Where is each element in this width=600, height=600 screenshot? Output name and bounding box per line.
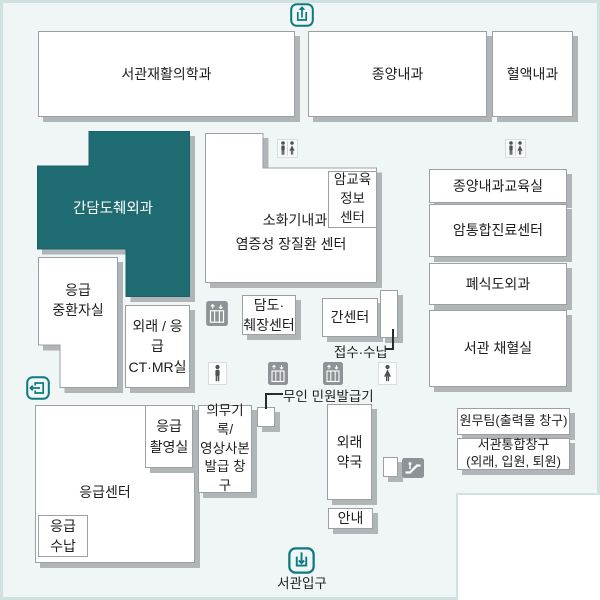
room-label-digestive-2: 염증성 장질환 센터 [208, 235, 374, 255]
room-label: 췌장센터 [243, 315, 295, 335]
room-label: (외래, 입원, 퇴원) [466, 454, 561, 471]
reception-connector-line [386, 329, 394, 350]
restroom-unisex-icon [505, 139, 526, 158]
room-blood-lab: 서관 채혈실 [429, 310, 567, 387]
room-label: 의무기록/ [199, 402, 251, 440]
room-label-hbp: 간담도췌외과 [40, 199, 186, 219]
room-label: 서관통합창구 [478, 437, 550, 454]
room-oncology: 종양내과 [308, 31, 487, 117]
room-label: CT·MR실 [129, 357, 187, 377]
room-label: 외래 [337, 432, 363, 452]
room-pharmacy: 외래 약국 [327, 404, 372, 500]
room-ct-mr: 외래 / 응급 CT·MR실 [125, 305, 190, 388]
room-label: 영상사본 [200, 440, 250, 459]
side-exit-icon [26, 376, 50, 400]
room-label: 응급 [40, 281, 116, 301]
elevator-icon [206, 301, 228, 326]
room-label: 수납 [50, 536, 76, 556]
room-label: 응급 [156, 416, 182, 436]
room-label: 약국 [337, 452, 363, 472]
room-label-er-icu: 응급 중환자실 [40, 281, 116, 320]
kiosk-box [257, 407, 275, 427]
room-label-digestive-1: 소화기내과 [235, 211, 355, 231]
restroom-female-icon [378, 362, 397, 385]
room-er-pay: 응급 수납 [38, 515, 88, 557]
room-label: 정보 [340, 190, 365, 209]
room-label: 종양내과교육실 [453, 176, 543, 196]
escalator-icon [402, 458, 424, 478]
er-icu-shape [38, 257, 118, 388]
room-integrated-desk: 서관통합창구 (외래, 입원, 퇴원) [457, 438, 570, 470]
small-booth [383, 457, 398, 477]
room-label: 서관 채혈실 [464, 338, 532, 358]
room-liver-center: 간센터 [322, 298, 378, 337]
room-label: 암교육 [334, 171, 371, 190]
room-label: 혈액내과 [507, 64, 559, 84]
room-rehab: 서관재활의학과 [38, 31, 295, 117]
kiosk-label: 무인 민원발급기 [283, 388, 393, 407]
room-info-desk: 안내 [328, 508, 373, 529]
room-label: 안내 [338, 508, 364, 528]
upper-exit-icon [290, 3, 314, 27]
elevator-icon [268, 362, 288, 385]
room-admin-team: 원무팀(출력물 창구) [457, 408, 570, 435]
restroom-unisex-icon [277, 139, 298, 158]
room-label: 외래 / 응급 [126, 316, 189, 357]
hospital-floor-map: 서관재활의학과 종양내과 혈액내과 종양내과교육실 암통합진료센터 폐식도외과 … [0, 0, 600, 600]
room-onco-edu: 종양내과교육실 [429, 169, 567, 203]
room-label: 응급센터 [36, 482, 174, 502]
room-hematology: 혈액내과 [492, 31, 573, 117]
room-lung-eso: 폐식도외과 [429, 263, 567, 305]
room-label: 발급 창구 [199, 458, 251, 496]
room-label: 간센터 [331, 307, 370, 327]
elevator-icon [323, 362, 343, 385]
map-cutout-corner [456, 493, 600, 600]
room-label: 중환자실 [40, 301, 116, 321]
room-label: 응급 [50, 516, 76, 536]
room-label: 서관재활의학과 [121, 64, 211, 84]
room-er-icu [38, 257, 118, 388]
room-label: 원무팀(출력물 창구) [460, 413, 568, 430]
room-label: 담도· [254, 295, 284, 315]
restroom-male-icon [208, 362, 227, 385]
main-entrance-icon [288, 547, 315, 574]
room-bile-pancreas: 담도· 췌장센터 [242, 295, 296, 335]
room-label: 암통합진료센터 [453, 220, 543, 240]
room-label: 종양내과 [372, 64, 424, 84]
room-er-xray: 응급 촬영실 [145, 405, 193, 468]
kiosk-connector-line [265, 393, 283, 409]
entrance-label: 서관입구 [270, 575, 334, 594]
room-label: 폐식도외과 [466, 274, 530, 294]
room-cancer-center: 암통합진료센터 [429, 204, 567, 257]
reception-label: 접수·수납 [322, 344, 388, 363]
room-label: 촬영실 [150, 437, 189, 457]
room-medical-records: 의무기록/ 영상사본 발급 창구 [198, 405, 252, 493]
